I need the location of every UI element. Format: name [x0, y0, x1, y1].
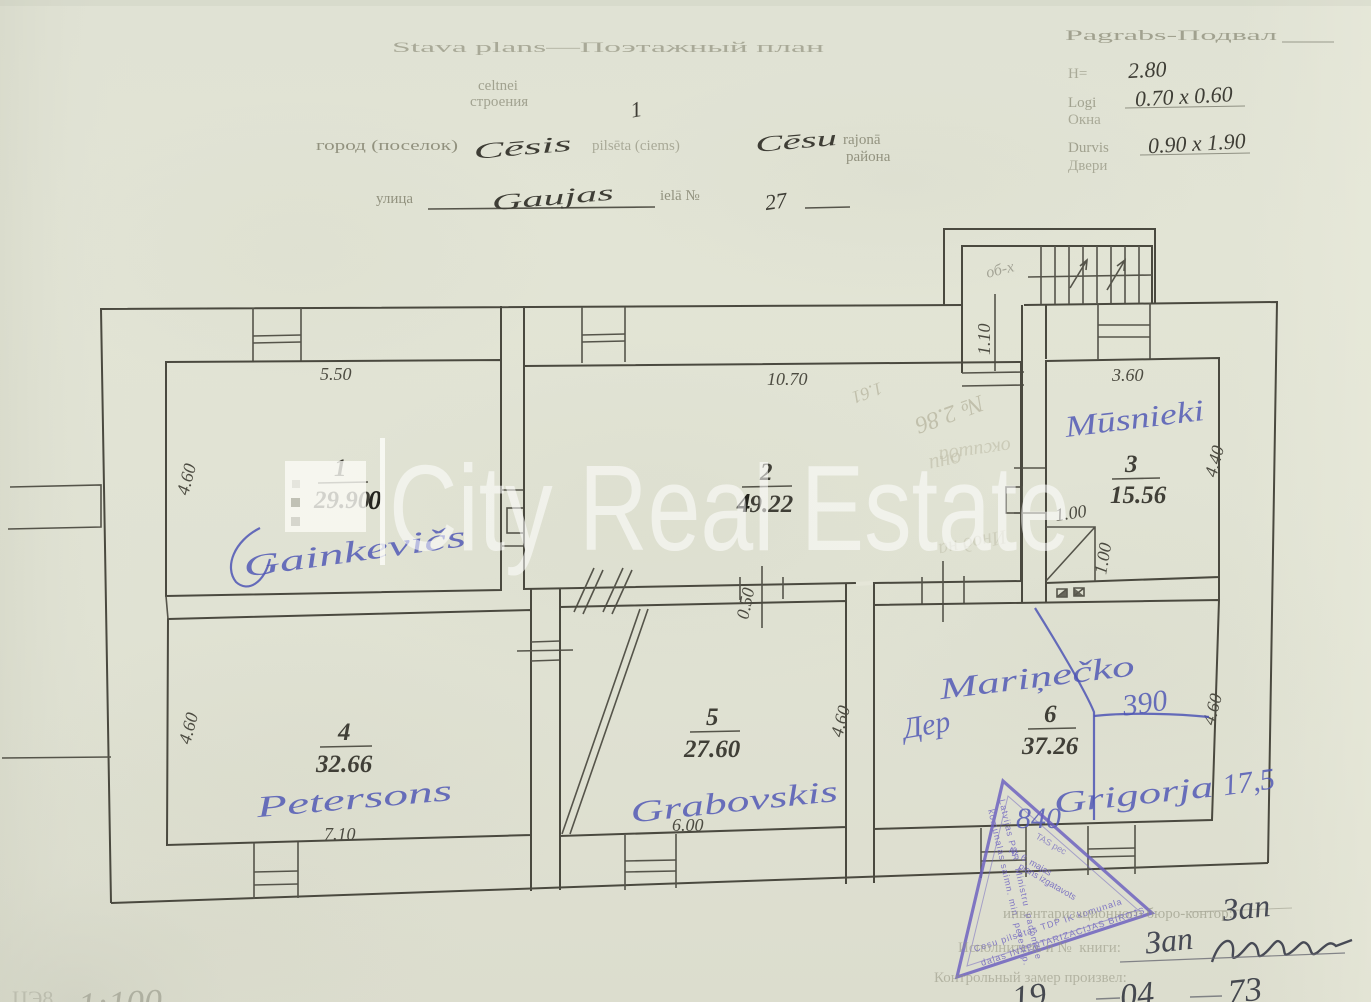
svg-text:32.66: 32.66 — [315, 751, 373, 778]
svg-text:Двери: Двери — [1068, 158, 1107, 174]
svg-text:19: 19 — [1010, 976, 1049, 1002]
svg-text:Stava plans—Поэтажный план: Stava plans—Поэтажный план — [392, 40, 824, 56]
svg-text:1.10: 1.10 — [974, 324, 994, 356]
svg-text:390: 390 — [1119, 684, 1169, 723]
svg-text:37.26: 37.26 — [1021, 733, 1079, 760]
svg-text:3: 3 — [1124, 451, 1138, 478]
svg-text:город (поселок): город (поселок) — [316, 138, 458, 154]
svg-text:7.10: 7.10 — [324, 824, 356, 844]
svg-text:строения: строения — [470, 94, 528, 110]
svg-text:0: 0 — [368, 485, 382, 515]
svg-text:Зап: Зап — [1220, 887, 1271, 928]
svg-text:City Real Estate: City Real Estate — [389, 440, 1070, 576]
svg-text:Зап: Зап — [1143, 920, 1194, 961]
svg-text:Исполнитель и № книги:: Исполнитель и № книги: — [958, 940, 1121, 956]
svg-text:H=: H= — [1068, 66, 1087, 82]
svg-text:Logi: Logi — [1068, 95, 1096, 111]
svg-text:10.70: 10.70 — [767, 369, 808, 389]
svg-text:4: 4 — [337, 719, 351, 746]
svg-text:15.56: 15.56 — [1110, 482, 1167, 509]
svg-text:27: 27 — [763, 187, 789, 215]
svg-text:улица: улица — [376, 191, 413, 207]
svg-text:pilsēta (ciems): pilsēta (ciems) — [592, 138, 680, 154]
svg-text:celtnei: celtnei — [478, 78, 518, 94]
svg-text:Pagrabs-Подвал: Pagrabs-Подвал — [1065, 28, 1278, 44]
svg-text:ЦЭ8: ЦЭ8 — [12, 986, 53, 1002]
svg-text:73: 73 — [1226, 971, 1264, 1002]
svg-text:ielā №: ielā № — [660, 188, 700, 204]
svg-text:5.50: 5.50 — [320, 364, 352, 384]
svg-text:2.80: 2.80 — [1127, 56, 1167, 83]
svg-text:5: 5 — [706, 704, 719, 731]
svg-text:1:100: 1:100 — [77, 981, 163, 1002]
svg-text:инвентаризационного бюро-конто: инвентаризационного бюро-контор: — [1003, 906, 1233, 922]
svg-text:6: 6 — [1044, 701, 1057, 728]
svg-text:Окна: Окна — [1068, 112, 1101, 128]
svg-text:3.60: 3.60 — [1111, 365, 1144, 385]
svg-text:района: района — [846, 149, 891, 165]
svg-text:27.60: 27.60 — [683, 736, 741, 763]
svg-text:Durvis: Durvis — [1068, 140, 1109, 156]
svg-text:rajonā: rajonā — [843, 132, 881, 148]
svg-text:04: 04 — [1118, 975, 1156, 1002]
